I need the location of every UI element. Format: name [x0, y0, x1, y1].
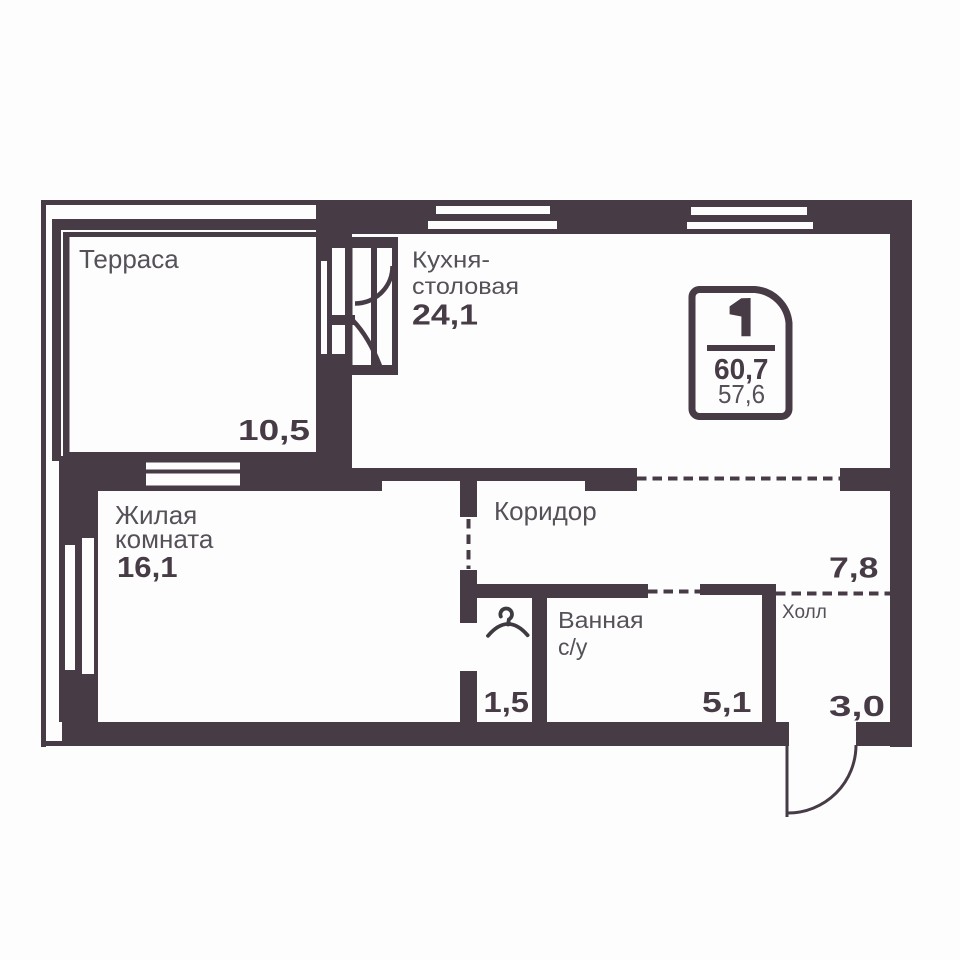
svg-text:Ванная: Ванная	[558, 607, 644, 633]
svg-text:16,1: 16,1	[117, 552, 178, 584]
svg-text:Кухня-: Кухня-	[412, 247, 490, 273]
svg-text:Коридор: Коридор	[494, 496, 597, 526]
svg-text:1,5: 1,5	[484, 687, 530, 719]
svg-text:57,6: 57,6	[718, 379, 765, 409]
svg-text:7,8: 7,8	[829, 553, 879, 585]
svg-text:5,1: 5,1	[702, 687, 752, 719]
svg-text:3,0: 3,0	[829, 691, 885, 723]
svg-text:24,1: 24,1	[412, 300, 478, 332]
svg-text:Холл: Холл	[782, 602, 827, 623]
svg-text:столовая: столовая	[412, 273, 519, 299]
svg-text:10,5: 10,5	[238, 415, 310, 447]
svg-text:Терраса: Терраса	[79, 244, 179, 274]
svg-text:с/у: с/у	[558, 634, 588, 660]
svg-text:комната: комната	[115, 524, 214, 554]
